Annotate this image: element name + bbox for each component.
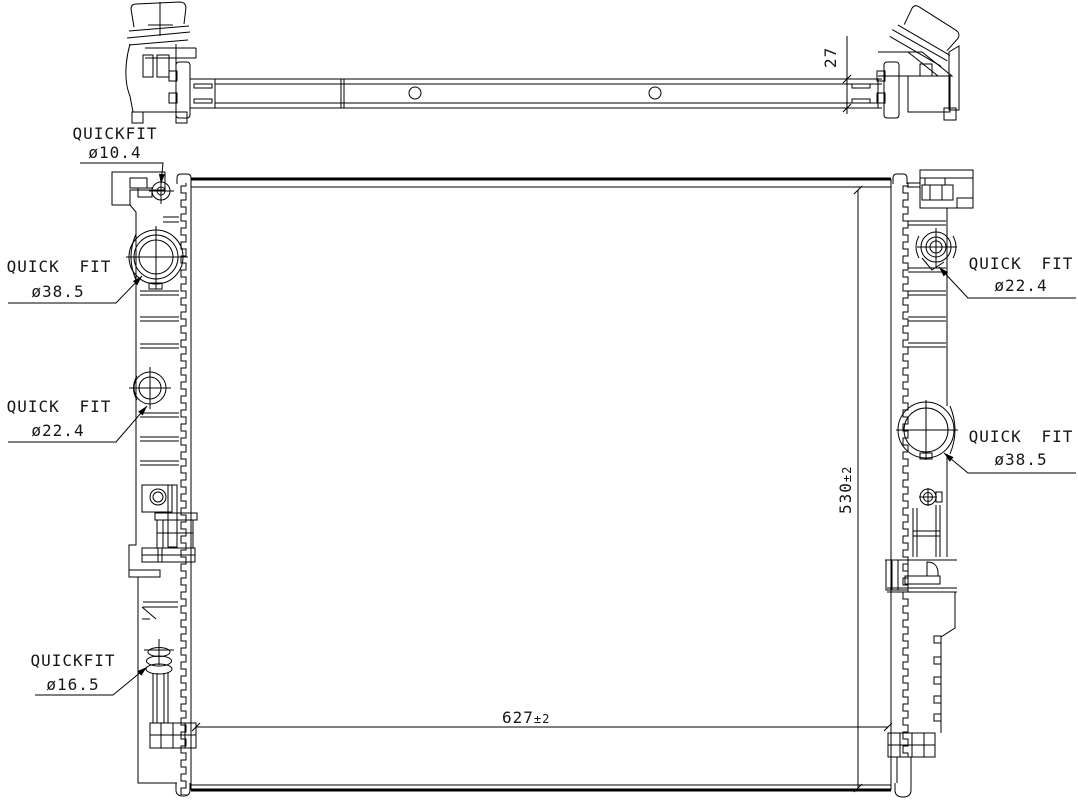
right-tank-ribs	[908, 221, 946, 347]
callout-right-38-5-name: QUICK FIT	[969, 427, 1074, 446]
dimension-core-height-text: 530±2	[836, 466, 855, 514]
callout-right-22-4-name: QUICK FIT	[969, 254, 1074, 273]
callout-right-quickfit-22-4: QUICK FIT ø22.4	[937, 254, 1076, 298]
callout-quickfit-10-4-size: ø10.4	[88, 143, 141, 162]
beam-slot	[852, 84, 870, 88]
beam-hole	[409, 87, 421, 99]
dimension-tank-depth-value: 27	[821, 47, 840, 68]
right-bottom-bracket	[888, 733, 935, 797]
beam-hole	[649, 87, 661, 99]
right-edge-tabs	[934, 636, 941, 721]
callout-left-38-5-size: ø38.5	[31, 282, 84, 301]
right-tank-outline-lower	[941, 592, 955, 733]
right-flange-cap	[893, 174, 907, 184]
left-bottom-bracket	[150, 723, 196, 796]
callouts: QUICKFIT ø10.4 QUICK FIT ø38.5 QUICK FIT…	[7, 124, 1076, 695]
right-mid-bracket	[885, 560, 957, 592]
callout-quickfit-10-4-name: QUICKFIT	[72, 124, 157, 143]
left-port-22	[129, 367, 171, 409]
callout-left-quickfit-22-4: QUICK FIT ø22.4	[7, 397, 150, 442]
left-top-bracket	[112, 172, 174, 205]
left-tank-outline	[129, 205, 136, 577]
right-top-bracket	[907, 170, 973, 208]
callout-left-quickfit-38-5: QUICK FIT ø38.5	[7, 257, 145, 303]
callout-quickfit-10-4: QUICKFIT ø10.4	[72, 124, 164, 184]
dimension-tank-depth: 27	[821, 36, 851, 114]
callout-quickfit-16-5-name: QUICKFIT	[30, 651, 115, 670]
top-view-beam	[190, 79, 882, 108]
callout-quickfit-16-5: QUICKFIT ø16.5	[30, 651, 148, 695]
left-drain-fitting	[144, 639, 174, 723]
callout-left-22-4-name: QUICK FIT	[7, 397, 112, 416]
right-flange-serration	[900, 183, 910, 757]
left-flange-cap	[177, 174, 191, 184]
callout-quickfit-16-5-size: ø16.5	[46, 675, 99, 694]
right-boss	[913, 488, 942, 557]
beam-slot	[194, 84, 212, 88]
radiator-technical-drawing: 27	[0, 0, 1078, 800]
right-port-22	[916, 228, 957, 270]
dimension-core-height: 530±2	[836, 186, 862, 792]
dimension-core-width: 627±2	[192, 708, 892, 731]
left-tank	[112, 172, 197, 796]
callout-right-38-5-size: ø38.5	[994, 450, 1047, 469]
right-tank	[885, 170, 973, 797]
dimension-core-width-text: 627±2	[502, 708, 550, 727]
callout-right-22-4-size: ø22.4	[994, 276, 1047, 295]
beam-slot	[194, 99, 212, 103]
top-view-left-mount	[126, 2, 196, 123]
callout-left-22-4-size: ø22.4	[31, 421, 84, 440]
callout-right-quickfit-38-5: QUICK FIT ø38.5	[942, 427, 1076, 473]
callout-left-38-5-name: QUICK FIT	[7, 257, 112, 276]
top-view-right-mount	[877, 0, 964, 120]
radiator-technical-drawing-page: 27	[0, 0, 1078, 800]
radiator-core	[191, 179, 891, 790]
top-view: 27	[126, 0, 965, 123]
left-sensor-block	[142, 485, 177, 547]
front-view: 627±2 530±2	[112, 170, 973, 797]
beam-slot	[852, 99, 870, 103]
left-flange-serration	[178, 183, 188, 795]
